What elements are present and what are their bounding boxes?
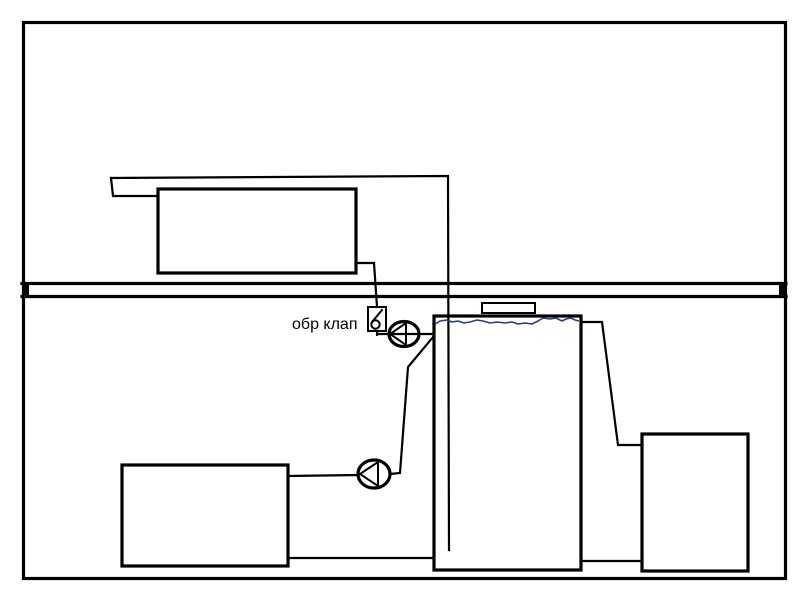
heating-schematic: обр клап bbox=[0, 0, 800, 600]
room-outline bbox=[24, 23, 786, 579]
divider-left-cap bbox=[22, 282, 29, 298]
upper-box bbox=[158, 189, 356, 273]
main-tank-cap bbox=[482, 303, 535, 313]
check-valve bbox=[368, 307, 386, 335]
check-valve-label: обр клап bbox=[292, 316, 357, 333]
pipes bbox=[111, 176, 642, 561]
check-valve-ball bbox=[371, 320, 379, 328]
lower-left-box bbox=[122, 465, 288, 566]
lower-pump-riser-pipe bbox=[390, 337, 433, 474]
main-tank-body bbox=[434, 316, 581, 570]
upper-box-inlet-pipe bbox=[111, 178, 158, 196]
divider-right-cap bbox=[779, 282, 786, 298]
lower-pump-suction-pipe bbox=[288, 475, 358, 476]
floor-divider bbox=[22, 282, 786, 298]
water-level-line bbox=[435, 318, 579, 324]
main-tank bbox=[434, 303, 581, 570]
fill-pipe bbox=[111, 176, 449, 550]
tank-to-right-box-pipe bbox=[581, 322, 642, 445]
right-box bbox=[642, 434, 748, 571]
pump-lower bbox=[358, 460, 390, 488]
schematic-canvas: обр клап bbox=[0, 0, 800, 600]
